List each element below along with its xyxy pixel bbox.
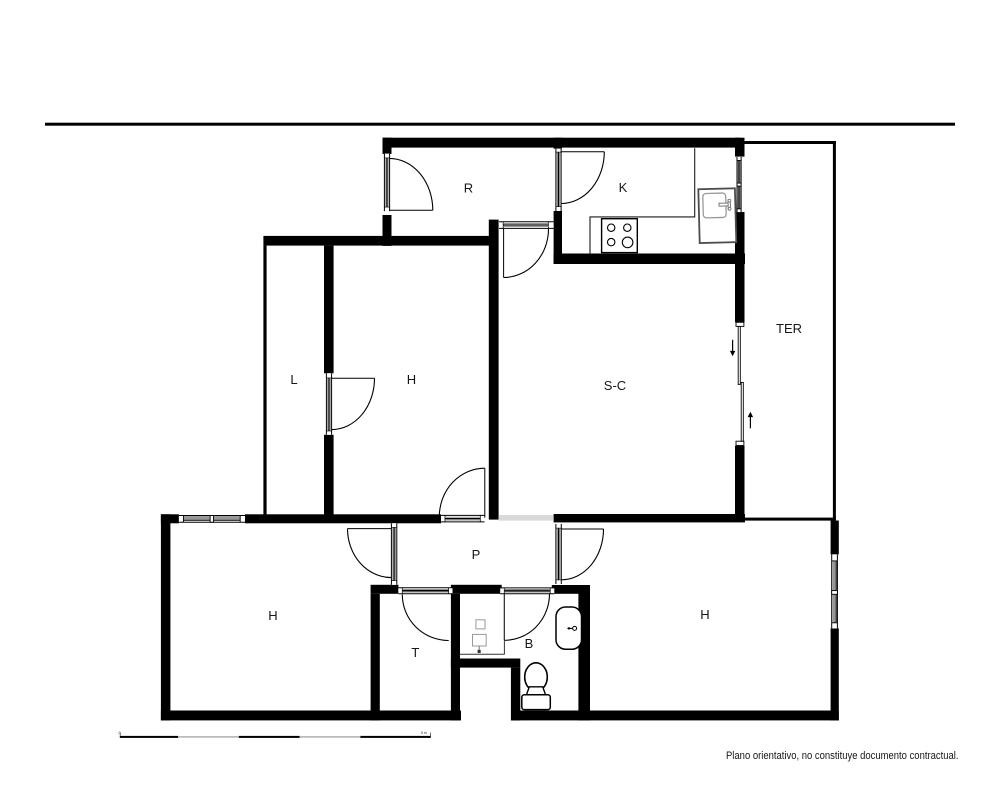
svg-text:H: H [407,372,416,387]
svg-text:P: P [472,547,481,562]
svg-text:K: K [619,180,628,195]
svg-text:H: H [268,608,277,623]
svg-text:R: R [464,181,473,196]
svg-text:5 m: 5 m [421,731,427,735]
svg-text:B: B [525,636,534,651]
svg-text:L: L [290,372,297,387]
svg-text:0: 0 [119,731,121,735]
svg-text:TER: TER [776,321,802,336]
svg-text:S-C: S-C [604,378,626,393]
svg-text:T: T [411,645,419,660]
svg-text:H: H [700,607,709,622]
svg-text:Plano orientativo, no constitu: Plano orientativo, no constituye documen… [726,750,959,762]
